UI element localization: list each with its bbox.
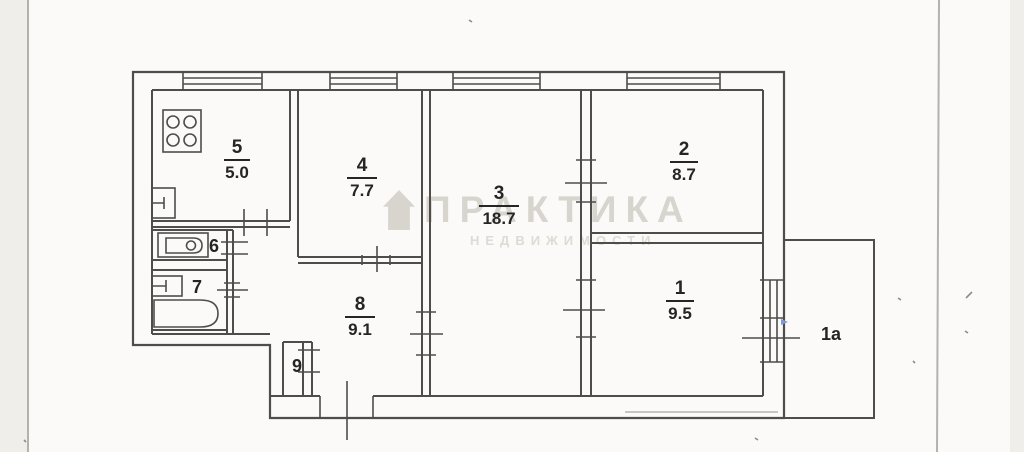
door-icon-room2	[565, 160, 607, 202]
fraction-bar	[479, 205, 519, 207]
room-label-2: 2 8.7	[670, 140, 698, 183]
room-label-7: 7	[192, 278, 202, 297]
room-area: 7.7	[347, 182, 377, 199]
room-number: 1а	[821, 325, 841, 344]
room-number: 2	[670, 140, 698, 159]
exterior-walls	[133, 72, 784, 418]
room-label-9: 9	[292, 357, 302, 376]
room-number: 6	[209, 237, 219, 256]
window-icon	[627, 72, 720, 90]
room-area: 9.1	[345, 321, 375, 338]
toilet-icon	[158, 233, 208, 257]
window-icon	[183, 72, 262, 90]
window-icon	[453, 72, 540, 90]
door-icon-room1	[563, 280, 605, 337]
fraction-bar	[347, 177, 377, 179]
room-label-6: 6	[209, 237, 219, 256]
stove-icon	[163, 110, 201, 152]
interior-walls	[152, 90, 763, 396]
room-area: 18.7	[479, 210, 519, 227]
room-number: 9	[292, 357, 302, 376]
fraction-bar	[666, 300, 694, 302]
bath-sink-icon	[152, 276, 182, 296]
room-label-4: 4 7.7	[347, 156, 377, 199]
door-icon-kitchen	[244, 209, 267, 236]
entrance-door-icon	[320, 381, 373, 440]
room-label-8: 8 9.1	[345, 295, 375, 338]
door-icon-wc	[221, 242, 248, 254]
kitchen-sink-icon	[152, 188, 175, 218]
fraction-bar	[224, 159, 250, 161]
room-label-3: 3 18.7	[479, 184, 519, 227]
room-number: 1	[666, 279, 694, 298]
room-number: 7	[192, 278, 202, 297]
room-number: 4	[347, 156, 377, 175]
balcony-door-icon	[742, 280, 800, 362]
room-area: 5.0	[224, 164, 250, 181]
door-icon-room4	[362, 246, 390, 272]
door-icons	[217, 160, 607, 440]
room-label-1a: 1а	[821, 325, 841, 344]
window-icon	[330, 72, 397, 90]
fraction-bar	[345, 316, 375, 318]
fraction-bar	[670, 161, 698, 163]
room-label-1: 1 9.5	[666, 279, 694, 322]
room-number: 8	[345, 295, 375, 314]
room-area: 9.5	[666, 305, 694, 322]
door-icon-room3	[410, 312, 443, 355]
window-icons	[183, 72, 720, 90]
scanned-floor-plan-page: ПРАКТИКА НЕДВИЖИМОСТИ	[0, 0, 1024, 452]
room-label-5: 5 5.0	[224, 138, 250, 181]
room-area: 8.7	[670, 166, 698, 183]
fixtures	[152, 110, 218, 327]
room-number: 3	[479, 184, 519, 203]
bathtub-icon	[154, 300, 218, 327]
room-number: 5	[224, 138, 250, 157]
